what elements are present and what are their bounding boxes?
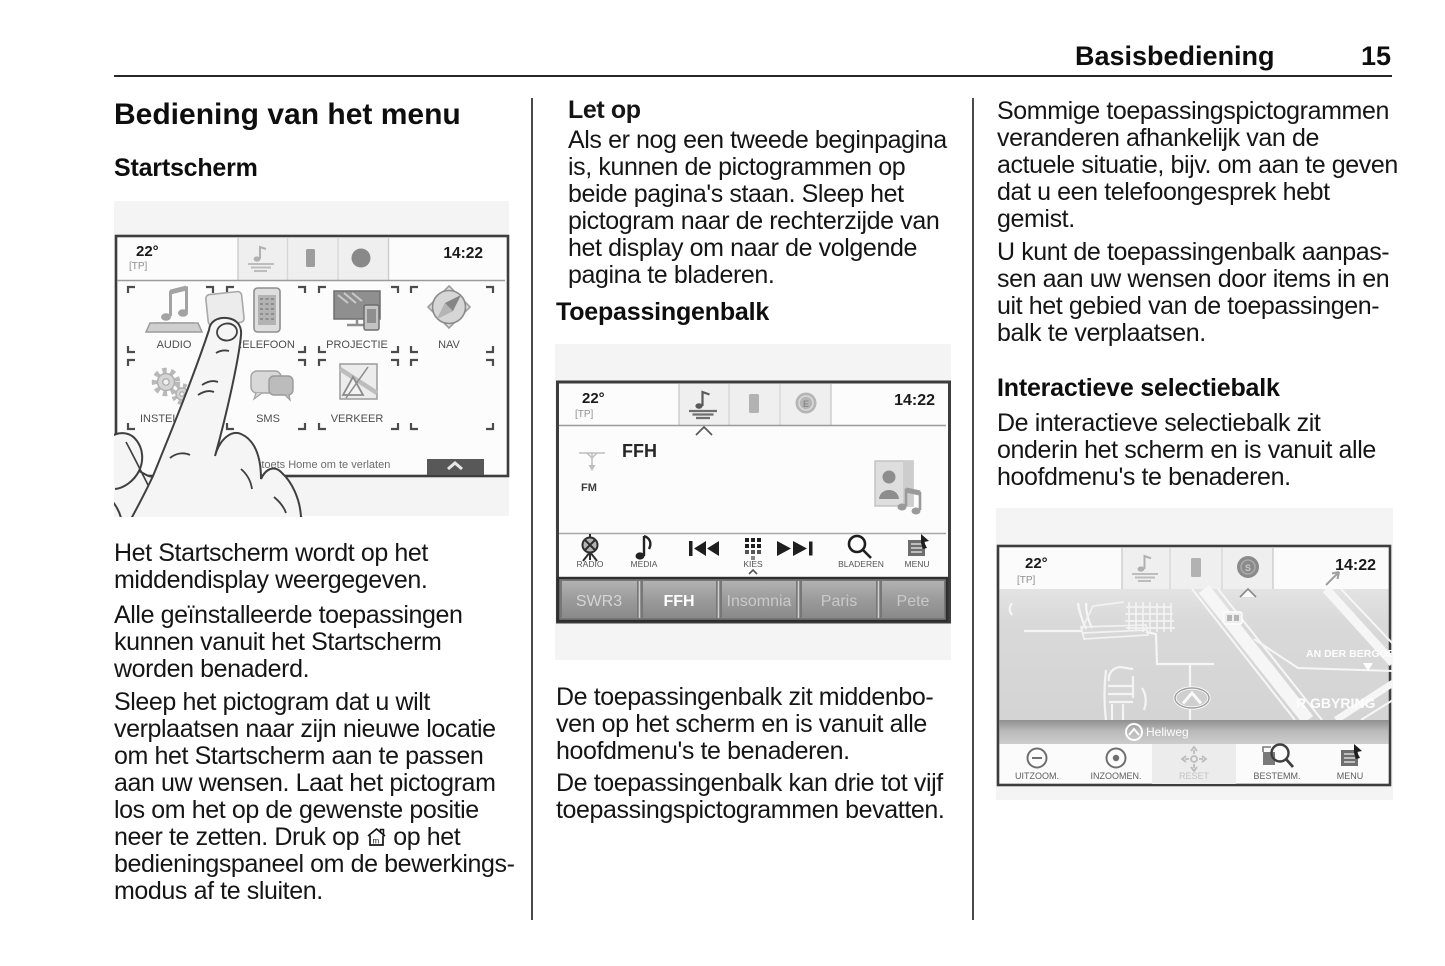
- svg-text:14:22: 14:22: [1335, 557, 1376, 574]
- svg-text::ELEFOON: :ELEFOON: [239, 339, 295, 351]
- svg-text:AUDIO: AUDIO: [157, 339, 192, 351]
- svg-text:SWR3: SWR3: [576, 593, 622, 610]
- svg-text:R GBYRING: R GBYRING: [1296, 695, 1375, 711]
- svg-text:[TP]: [TP]: [129, 261, 148, 272]
- svg-text:MENU: MENU: [1337, 771, 1364, 781]
- svg-text:[TP]: [TP]: [1017, 575, 1036, 586]
- svg-text:FFH: FFH: [622, 441, 657, 461]
- svg-text:[TP]: [TP]: [575, 409, 594, 420]
- svg-text:E: E: [803, 399, 809, 409]
- svg-text:22°: 22°: [582, 390, 605, 407]
- svg-text:FM: FM: [581, 482, 597, 494]
- svg-text:MENU: MENU: [904, 559, 929, 569]
- svg-text:Pete: Pete: [897, 593, 930, 610]
- svg-text:14:22: 14:22: [443, 245, 483, 262]
- svg-text:RESET: RESET: [1179, 771, 1210, 781]
- svg-text:SMS: SMS: [256, 413, 280, 425]
- svg-text:BLADEREN: BLADEREN: [838, 559, 884, 569]
- svg-text:Heliweg: Heliweg: [1146, 725, 1189, 739]
- svg-text:UITZOOM.: UITZOOM.: [1015, 771, 1059, 781]
- svg-text:PROJECTIE: PROJECTIE: [326, 339, 388, 351]
- svg-text:RADIO: RADIO: [577, 559, 604, 569]
- svg-text:AN DER BERGGEW: AN DER BERGGEW: [1306, 648, 1393, 660]
- svg-text:NAV: NAV: [438, 339, 460, 351]
- svg-text:INZOOMEN.: INZOOMEN.: [1091, 771, 1142, 781]
- svg-text:m: m: [372, 837, 379, 846]
- svg-text:Insomnia: Insomnia: [727, 593, 792, 610]
- svg-text:FFH: FFH: [663, 593, 694, 610]
- svg-text:S: S: [1245, 563, 1251, 573]
- svg-text:MEDIA: MEDIA: [631, 559, 658, 569]
- svg-text:BESTEMM.: BESTEMM.: [1253, 771, 1300, 781]
- svg-text:22°: 22°: [1025, 555, 1048, 572]
- svg-text:22°: 22°: [136, 243, 159, 260]
- svg-text:VERKEER: VERKEER: [331, 413, 384, 425]
- svg-text:14:22: 14:22: [894, 392, 935, 409]
- svg-text:KIES: KIES: [743, 559, 763, 569]
- svg-text:Paris: Paris: [821, 593, 857, 610]
